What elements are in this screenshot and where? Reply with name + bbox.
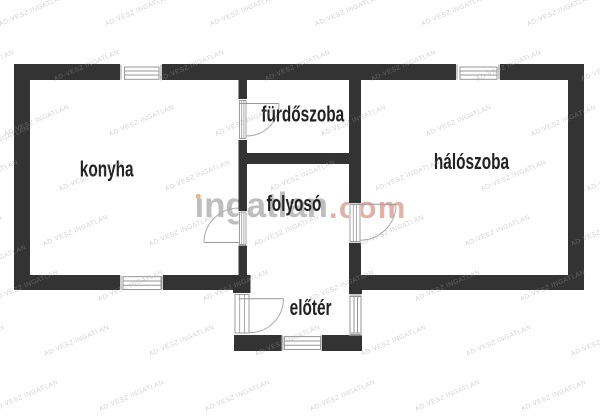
svg-text:folyosó: folyosó <box>267 192 322 216</box>
svg-text:.com: .com <box>329 190 407 225</box>
svg-text:hálószoba: hálószoba <box>434 150 510 174</box>
